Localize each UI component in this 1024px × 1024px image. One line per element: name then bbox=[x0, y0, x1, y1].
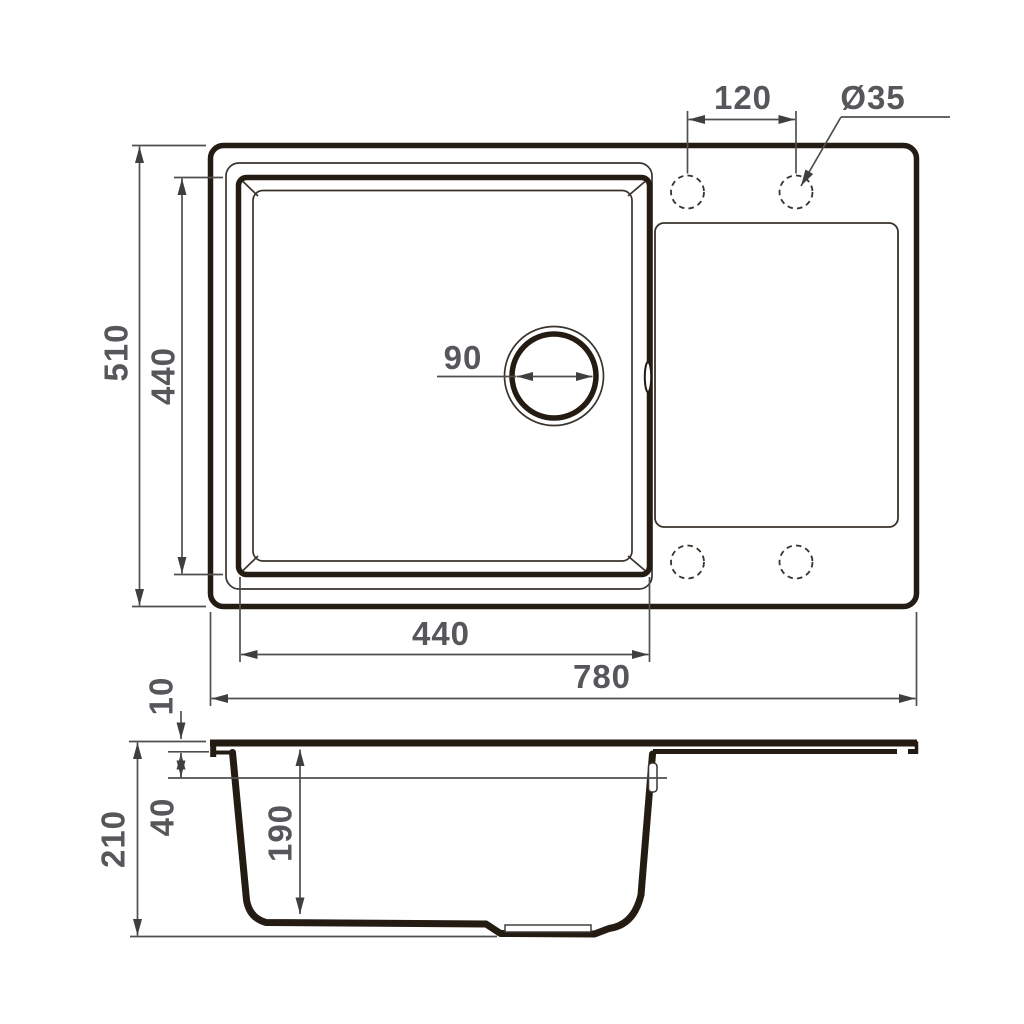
section-right-notch bbox=[897, 749, 908, 757]
dim-label-190: 190 bbox=[262, 804, 299, 862]
dim-label-10: 10 bbox=[143, 677, 180, 716]
dim-label-210: 210 bbox=[95, 810, 132, 868]
dim-label-780: 780 bbox=[573, 658, 631, 695]
section-drain-slot bbox=[505, 925, 591, 932]
dim-label-440-depth: 440 bbox=[145, 347, 182, 405]
dim-label-dia35: Ø35 bbox=[840, 79, 905, 116]
drawing-canvas: 510 440 440 780 120 Ø35 90 10 40 210 190 bbox=[0, 0, 1024, 1024]
sink-technical-drawing: 510 440 440 780 120 Ø35 90 10 40 210 190 bbox=[0, 0, 1024, 1024]
dim-label-510: 510 bbox=[98, 323, 135, 381]
dim-label-120: 120 bbox=[714, 79, 772, 116]
overflow-slot bbox=[645, 362, 651, 392]
dim-label-440-width: 440 bbox=[412, 615, 470, 652]
dim-label-40: 40 bbox=[144, 798, 181, 837]
dim-label-90: 90 bbox=[444, 339, 483, 376]
side-view bbox=[210, 742, 917, 935]
